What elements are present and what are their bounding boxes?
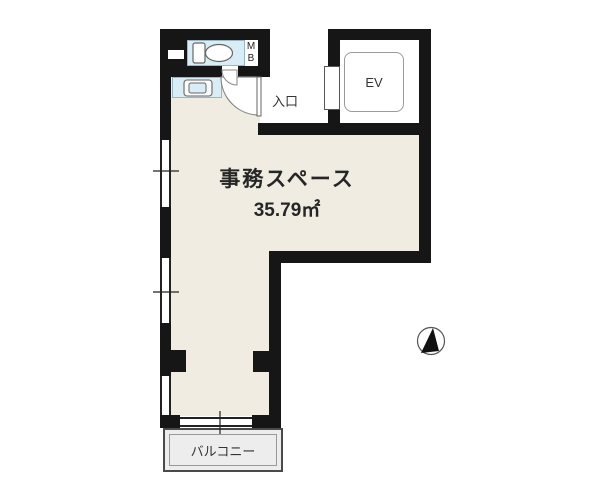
toilet-door-opening [222,66,238,77]
window-left-1 [160,140,171,207]
office-room-label: 事務スペース [180,163,394,193]
room-toilet [187,40,245,66]
north-arrow-icon [418,328,445,355]
pipe-space-niche [168,50,184,59]
ev-label: EV [365,75,382,90]
room-washbasin [172,77,222,98]
wall-hall-west [258,29,270,77]
wall-bottom-left-corner [160,415,180,428]
mb-label-b: B [244,53,258,65]
wall-ev-bottom [328,123,431,135]
wall-bottom-right-corner [252,415,281,428]
room-office-fill-lower [168,253,271,416]
mb-label: M B [244,41,258,65]
wall-upper-room-bottom [269,251,431,263]
floorplan-canvas: バルコニー EV [0,0,600,502]
window-left-3 [160,376,171,415]
window-left-2 [160,258,171,323]
mb-label-m: M [244,41,258,53]
office-area-label: 35.79㎡ [180,195,394,222]
balcony-label: バルコニー [191,441,256,460]
window-balcony [180,417,252,427]
pillar-right [253,351,269,372]
wall-left-b [160,207,171,258]
entrance-label: 入口 [272,91,298,110]
elevator-door [324,66,340,110]
wall-toilet-bottom [160,66,222,77]
wall-lower-right [269,251,281,428]
pillar-left [160,350,186,372]
elevator-car: EV [344,52,404,112]
balcony: バルコニー [163,428,283,472]
wall-ev-top [328,29,431,40]
wall-right [419,29,431,263]
